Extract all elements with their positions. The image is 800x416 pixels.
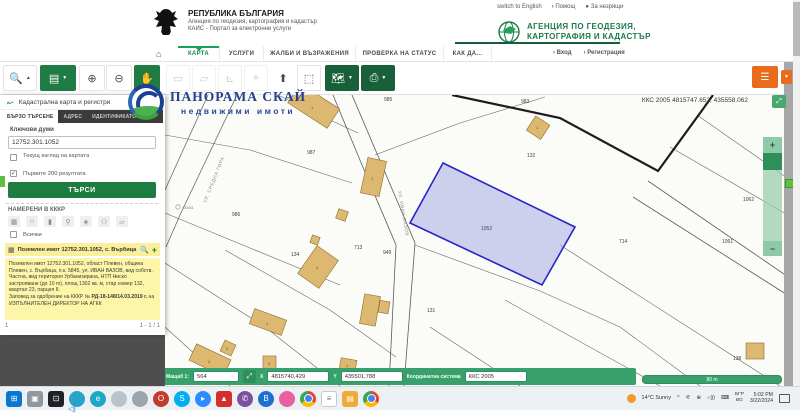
keywords-label: Ключови думи [10, 127, 54, 133]
volume-icon[interactable]: ◁)) [707, 395, 715, 401]
geodetic-label: 135/51 [182, 206, 194, 210]
panorama-sky-logo-icon [128, 84, 164, 120]
scale-label: Мащаб 1: [166, 374, 189, 380]
share-link-button[interactable]: ⤢ [772, 95, 786, 108]
parcel-label: 983 [521, 99, 530, 105]
edge-icon[interactable]: e [90, 391, 106, 407]
selection-box-icon: ⬚ [304, 72, 314, 85]
result-title: Поземлен имот 12752.301.1052, с. Върбица [18, 247, 137, 253]
ruler-icon: ▭ [173, 72, 183, 85]
tab-quick-search[interactable]: БЪРЗО ТЪРСЕНЕ [2, 110, 58, 123]
register-link[interactable]: › Регистрация [584, 50, 625, 56]
opera-icon[interactable]: O [153, 391, 169, 407]
agency-logo-text: АГЕНЦИЯ ПО ГЕОДЕЗИЯ, КАРТОГРАФИЯ И КАДАС… [527, 22, 651, 42]
parcel-label: 713 [354, 245, 363, 251]
zoom-out-icon: ⊖ [114, 72, 123, 85]
hand-icon: ✋ [140, 72, 154, 85]
parcel-label: 1062 [743, 197, 754, 203]
watermark-subtitle: недвижими имоти [170, 106, 306, 116]
parcel-label: 1061 [722, 239, 733, 245]
search-tool-button[interactable]: 🔍▲ [3, 65, 37, 91]
page-header: РЕПУБЛИКА БЪЛГАРИЯ Агенция по геодезия, … [0, 0, 800, 46]
building-icon[interactable]: ▮ [44, 216, 56, 227]
magnifier-icon[interactable]: 🔍 [140, 246, 149, 254]
agency-globe-icon [497, 20, 521, 44]
first-200-label: Първите 200 резултата [23, 171, 86, 177]
portal-subtitle: КАИС - Портал за електронни услуги [188, 26, 317, 32]
task-view-icon[interactable]: ▣ [27, 391, 43, 407]
page-scrollbar[interactable] [793, 0, 800, 416]
acrobat-icon[interactable]: ▲ [216, 391, 232, 407]
active-tab-indicator [178, 46, 219, 48]
sidebar-collapse-handle[interactable] [0, 176, 5, 187]
polygon-icon: ▱ [200, 72, 208, 85]
map-scale-bar: 80 m [642, 375, 782, 384]
battle-net-icon[interactable]: B [258, 391, 274, 407]
sidebar-footer-panel [0, 335, 165, 386]
map-info-button[interactable]: 🗺▼ [325, 65, 359, 91]
bottom-strip [0, 410, 800, 416]
parcel-label: 949 [383, 250, 392, 256]
swap-coordinates-icon[interactable]: ⤢ [243, 370, 256, 383]
house-icon[interactable]: ⌂ [26, 216, 38, 227]
grid-icon[interactable]: ▦ [8, 216, 20, 227]
keyboard-icon[interactable]: ⌨ [721, 395, 729, 401]
map-registers-icon: ↜ [7, 98, 14, 107]
notepad-icon[interactable]: ≡ [321, 391, 337, 407]
zoom-slider-minus-button[interactable]: − [763, 241, 782, 256]
person-icon[interactable]: ⚇ [98, 216, 110, 227]
parcel-label: 132 [527, 153, 536, 159]
printer-icon: ⎙ [370, 72, 379, 85]
feather-app-icon[interactable] [111, 391, 127, 407]
search-icon: 🔍 [9, 72, 23, 85]
road-edge [333, 95, 396, 386]
nav-tab-kak-da[interactable]: КАК ДА... [444, 46, 492, 62]
eye-dot-icon: ● [585, 4, 589, 10]
start-icon[interactable]: ⊞ [6, 391, 22, 407]
nav-tab-proverka[interactable]: ПРОВЕРКА НА СТАТУС [356, 46, 444, 62]
skype-icon[interactable]: S [174, 391, 190, 407]
result-pagination: 1 1 - 1 / 1 [5, 323, 160, 329]
chevron-down-icon: ▼ [62, 75, 67, 81]
accessibility-link[interactable]: ● За незрящи [585, 4, 623, 10]
crosshair-icon: ⌖ [253, 72, 259, 85]
result-details-box: Поземлен имот 12752.301.1052, област Пле… [5, 258, 160, 320]
chrome-2-icon[interactable] [363, 391, 379, 407]
notification-center-icon[interactable] [779, 394, 790, 403]
link-icon: ⤢ [776, 98, 782, 106]
x-coordinate-input[interactable] [267, 371, 329, 382]
network-icon[interactable]: ⚟ [686, 395, 691, 401]
polygon-icon[interactable]: ▱ [116, 216, 128, 227]
nav-tab-zhalbi[interactable]: ЖАЛБИ И ВЪЗРАЖЕНИЯ [264, 46, 356, 62]
nav-tab-uslugi[interactable]: УСЛУГИ [220, 46, 264, 62]
system-tray: 14°C Sunny ^ ⚟ ⊕ ◁)) ⌨ БГРBG 5:02 PM3/22… [627, 386, 790, 410]
weather-sun-icon[interactable] [627, 394, 636, 403]
zoom-slider-thumb[interactable] [763, 153, 782, 170]
map-toolbar: 🔍▲ ▤▼ ⊕ ⊖ ✋ ▭ ▱ ⊾ ⌖ ⬆ ⬚ 🗺▼ ⎙▼ [0, 62, 800, 95]
sidebar-title: Кадастрална карта и регистри [19, 99, 111, 106]
map-layers-info-icon: 🗺 [331, 72, 345, 85]
file-explorer-icon[interactable]: ▤ [342, 391, 358, 407]
add-result-icon[interactable]: + [152, 245, 157, 255]
selected-parcel-1052[interactable] [410, 163, 575, 285]
viber-icon[interactable]: ✆ [237, 391, 253, 407]
home-icon[interactable]: ⌂ [156, 49, 161, 59]
road-edge [352, 95, 415, 386]
grey-app-icon[interactable] [132, 391, 148, 407]
help-link[interactable]: › Помощ [552, 4, 576, 10]
map-menu-button[interactable]: ☰ [752, 66, 778, 88]
parcel-label: 987 [307, 150, 316, 156]
grid-icon: ▦ [8, 246, 15, 254]
chevron-up-icon: ▲ [26, 75, 31, 81]
angle-icon: ⊾ [225, 72, 234, 85]
y-label: Y [333, 374, 336, 380]
pink-app-icon[interactable] [279, 391, 295, 407]
first-200-checkbox[interactable]: ✓ [10, 170, 17, 177]
zoom-in-button[interactable]: ⊕ [79, 65, 105, 91]
current-view-label: Текущ изглед на картата [23, 153, 93, 159]
zoom-slider-plus-button[interactable]: + [763, 137, 782, 153]
location-icon[interactable]: ⊕ [697, 395, 702, 401]
page-range: 1 - 1 / 1 [140, 323, 160, 329]
map-pin-icon[interactable]: ⚲ [62, 216, 74, 227]
agency-subtitle: Агенция по геодезия, картография и кадас… [188, 19, 317, 25]
result-details-text: Поземлен имот 12752.301.1052, област Пле… [9, 261, 153, 293]
chrome-icon[interactable] [300, 391, 316, 407]
crs-input[interactable] [465, 371, 527, 382]
print-button[interactable]: ⎙▼ [361, 65, 395, 91]
divider [6, 203, 158, 204]
keywords-input[interactable] [8, 136, 156, 149]
chevron-down-icon: ▼ [784, 74, 789, 80]
search-result-row[interactable]: ▦ Поземлен имот 12752.301.1052, с. Върби… [5, 243, 160, 256]
chevron-down-icon: ▼ [381, 75, 386, 81]
layers-icon[interactable]: ◈ [80, 216, 92, 227]
current-view-checkbox[interactable] [10, 154, 17, 161]
upload-icon: ⬆ [278, 72, 287, 85]
result-type-filter-row: ▦ ⌂ ▮ ⚲ ◈ ⚇ ▱ [8, 216, 128, 227]
republic-title: РЕПУБЛИКА БЪЛГАРИЯ [188, 9, 317, 18]
parcel-label: 134 [291, 252, 300, 258]
weather-text[interactable]: 14°C Sunny [642, 395, 671, 401]
watermark-title: ПАНОРАМА СКАЙ [170, 89, 306, 105]
chevron-right-icon: › [584, 50, 586, 56]
switch-to-english-link[interactable]: switch to English [497, 4, 542, 10]
layers-button[interactable]: ▤▼ [40, 65, 76, 91]
street-label: УЛ. СРЕДНА ГОРА [202, 156, 225, 204]
hamburger-icon: ☰ [761, 72, 770, 83]
regulation-boundary [452, 95, 713, 171]
page-scrollbar-thumb[interactable] [793, 2, 800, 56]
language-indicator[interactable]: БГРBG [735, 392, 744, 403]
all-checkbox[interactable] [10, 231, 17, 238]
all-label: Всички [23, 232, 42, 238]
chevron-right-icon: › [553, 50, 555, 56]
parcel-label: 986 [232, 212, 241, 218]
layers-icon: ▤ [49, 72, 59, 85]
zoom-in-icon: ⊕ [87, 72, 96, 85]
main-navigation: ⌂ КАРТА УСЛУГИ ЖАЛБИ И ВЪЗРАЖЕНИЯ ПРОВЕР… [0, 46, 800, 62]
panorama-sky-watermark: ПАНОРАМА СКАЙ недвижими имоти [128, 84, 306, 120]
kais-cadastre-app: РЕПУБЛИКА БЪЛГАРИЯ Агенция по геодезия, … [0, 0, 800, 416]
tab-address[interactable]: АДРЕС [58, 110, 87, 123]
page-number[interactable]: 1 [5, 323, 8, 329]
zoom-icon[interactable]: ▸ [195, 391, 211, 407]
parcel-label: 131 [427, 308, 436, 314]
x-label: X [260, 374, 263, 380]
search-sidebar: ↜ Кадастрална карта и регистри БЪРЗО ТЪР… [0, 95, 165, 335]
map-status-bar: Мащаб 1: ⤢ X Y Координатна система [160, 368, 636, 385]
cursor-coordinates-readout: ККС 2005 4815747.652, 435558.062 [642, 97, 748, 104]
tray-chevron-icon[interactable]: ^ [677, 395, 680, 401]
search-button[interactable]: ТЪРСИ [8, 182, 156, 198]
chevron-down-icon: ▼ [348, 75, 353, 81]
header-divider [455, 42, 620, 44]
found-header: НАМЕРЕНИ В КККР [8, 207, 65, 213]
map-scrollbar[interactable] [784, 62, 793, 386]
login-link[interactable]: › Вход [553, 50, 572, 56]
parcel-label: 714 [619, 239, 628, 245]
scale-input[interactable] [193, 371, 239, 382]
parcel-label: 1052 [481, 226, 492, 232]
geodetic-point-icon [176, 205, 180, 209]
map-menu-caret-button[interactable]: ▼ [781, 70, 792, 84]
y-coordinate-input[interactable] [341, 371, 403, 382]
parcel-label: 138 [733, 356, 742, 362]
speaker-icon[interactable]: ◁) [68, 405, 76, 413]
street-label: УЛ. ИВАН ВАЗОВ [397, 190, 410, 236]
order-text: Заповед за одобрение на КККР № РД-18-148… [9, 294, 154, 307]
nav-tab-karta[interactable]: КАРТА [178, 46, 220, 62]
parcel-label: 985 [384, 97, 393, 103]
coat-of-arms-icon [152, 7, 180, 39]
chevron-right-icon: › [552, 4, 554, 10]
crs-label: Координатна система [407, 374, 461, 380]
clock[interactable]: 5:02 PM3/22/2024 [750, 392, 773, 404]
teamviewer-icon[interactable]: ⊡ [48, 391, 64, 407]
